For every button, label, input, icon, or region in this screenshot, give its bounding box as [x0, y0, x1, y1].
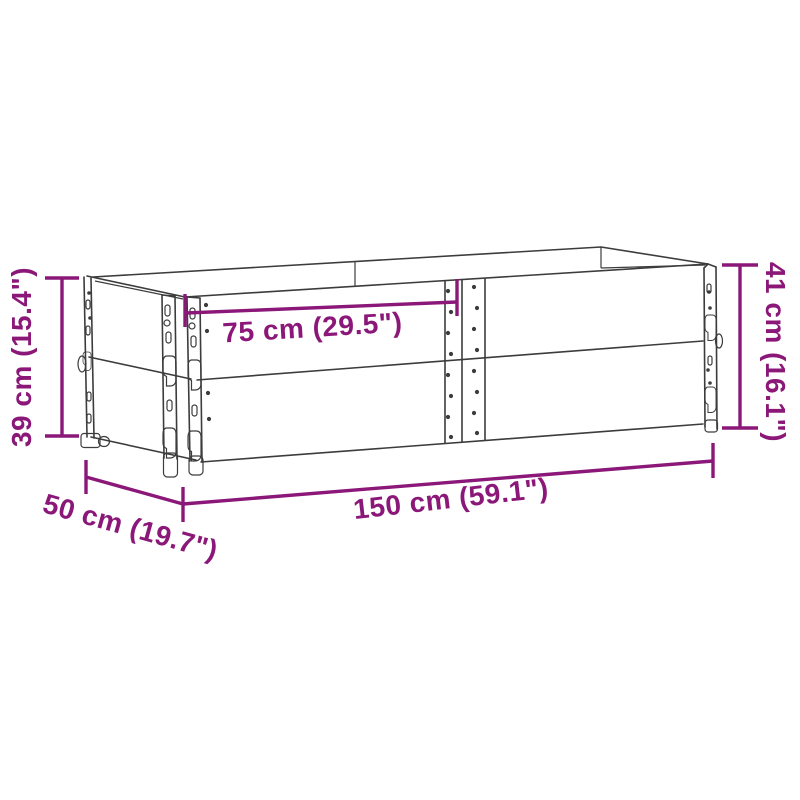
front-face-collar-seam — [197, 341, 703, 380]
product-dimension-diagram: 75 cm (29.5") 39 cm (15.4") 41 cm (16.1"… — [0, 0, 800, 800]
product-drawing — [78, 247, 723, 477]
dimension-label-inner-width: 75 cm (29.5") — [222, 307, 404, 349]
box-top-opening — [87, 247, 708, 299]
front-face-bottom-edge — [201, 424, 703, 462]
product-diagram-page: 75 cm (29.5") 39 cm (15.4") 41 cm (16.1"… — [0, 0, 800, 800]
corner-post-back-left — [78, 277, 110, 448]
outer-top-edges — [87, 264, 708, 297]
box-faces — [89, 341, 703, 462]
front-left-foot-a — [164, 453, 178, 477]
dimension-label-left-height: 39 cm (15.4") — [6, 267, 37, 447]
dimension-label-depth: 50 cm (19.7") — [40, 488, 222, 566]
dimension-length: 150 cm (59.1") — [183, 443, 713, 525]
dimension-right-height: 41 cm (16.1") — [722, 262, 791, 442]
dimension-label-length: 150 cm (59.1") — [352, 472, 550, 525]
right-foot — [705, 420, 718, 432]
back-left-foot — [81, 434, 100, 448]
back-and-right-top-edges — [93, 247, 708, 277]
dimension-left-height: 39 cm (15.4") — [6, 267, 79, 447]
corner-post-right — [704, 264, 723, 432]
dimension-label-right-height: 41 cm (16.1") — [760, 262, 791, 442]
dimension-inner-width: 75 cm (29.5") — [185, 279, 457, 348]
left-face-bottom-edge — [91, 437, 196, 460]
dimension-line — [86, 477, 183, 504]
dimension-depth: 50 cm (19.7") — [40, 460, 222, 566]
corner-post-front-left — [162, 295, 203, 477]
